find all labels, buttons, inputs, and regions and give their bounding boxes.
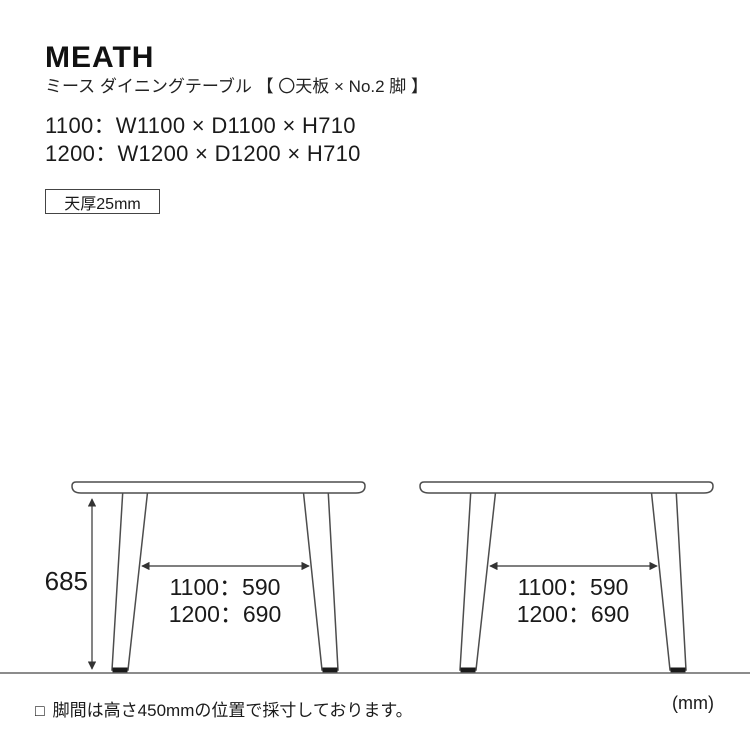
measurement-note-text: 脚間は高さ450mmの位置で採寸しております。 [53, 701, 413, 720]
right-table-tabletop [420, 482, 713, 493]
left-leg-span-label-1200: 1200：690 [169, 601, 282, 627]
left-table-left-foot [113, 668, 128, 673]
right-table-front-left-leg [460, 488, 496, 670]
height-dimension-label: 685 [45, 566, 88, 596]
right-table-right-foot [671, 668, 686, 673]
right-leg-span-label-1100: 1100：590 [518, 574, 629, 600]
right-table-left-foot [461, 668, 476, 673]
left-table-front-left-leg [112, 488, 148, 670]
left-table-front-right-leg [303, 488, 338, 670]
right-table-front-right-leg [651, 488, 686, 670]
square-bullet-icon: □ [35, 703, 45, 720]
right-leg-span-label-1200: 1200：690 [517, 601, 630, 627]
unit-label: (mm) [648, 693, 714, 714]
left-table-right-foot [323, 668, 338, 673]
left-leg-span-label-1100: 1100：590 [170, 574, 281, 600]
left-table-tabletop [72, 482, 365, 493]
measurement-note: □脚間は高さ450mmの位置で採寸しております。 [35, 696, 413, 721]
product-spec-sheet: MEATH ミース ダイニングテーブル 【 〇天板 × No.2 脚 】 110… [0, 0, 750, 750]
dimension-diagram: 685 1100：590 1200：690 1100：590 1200：690 [0, 0, 750, 750]
